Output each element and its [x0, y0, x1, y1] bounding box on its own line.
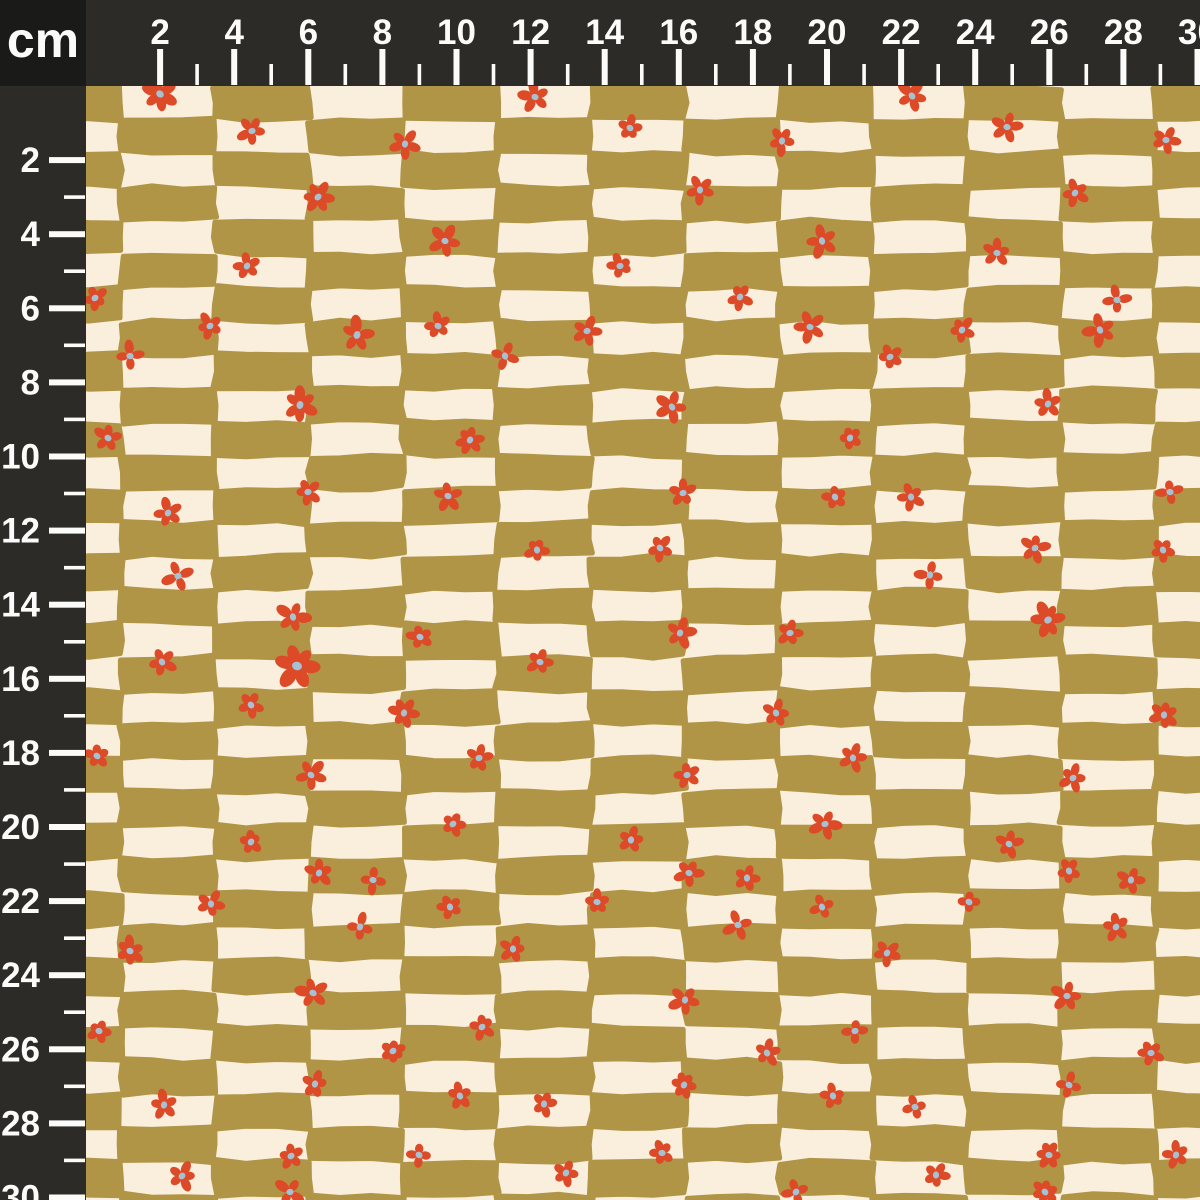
brush-stripe-cell	[119, 186, 216, 220]
brush-stripe-cell	[589, 219, 685, 255]
brush-stripe-cell	[1059, 588, 1157, 624]
brush-stripe-cell	[496, 119, 591, 152]
brush-stripe-cell	[872, 390, 968, 425]
left-minor-tick	[64, 714, 85, 718]
top-minor-tick	[344, 64, 348, 85]
brush-stripe-cell	[119, 118, 215, 153]
top-ruler-label: 4	[224, 13, 244, 52]
brush-stripe-cell	[308, 455, 405, 490]
brush-stripe-cell	[1154, 1092, 1200, 1128]
left-major-tick	[49, 231, 85, 237]
top-ruler-label: 8	[373, 13, 392, 52]
brush-stripe-cell	[684, 120, 780, 155]
brush-stripe-cell	[683, 590, 780, 623]
top-major-tick	[1046, 49, 1052, 85]
left-major-tick	[49, 898, 85, 904]
left-ruler-label: 12	[1, 512, 40, 551]
brush-stripe-cell	[589, 1161, 686, 1195]
brush-stripe-cell	[213, 1095, 310, 1130]
brush-stripe-cell	[403, 152, 499, 188]
brush-stripe-cell	[683, 254, 782, 290]
top-minor-tick	[418, 64, 422, 85]
brush-stripe-cell	[401, 1093, 497, 1128]
top-ruler-label: 24	[956, 13, 995, 52]
brush-stripe-cell	[965, 1093, 1063, 1128]
brush-stripe-cell	[497, 1059, 593, 1093]
brush-stripe-cell	[1154, 757, 1200, 792]
left-ruler-label: 6	[21, 289, 40, 328]
brush-stripe-cell	[1155, 355, 1200, 386]
brush-stripe-cell	[119, 790, 217, 827]
brush-stripe-cell	[873, 186, 969, 221]
brush-stripe-cell	[495, 590, 594, 623]
brush-stripe-cell	[495, 1194, 594, 1200]
brush-stripe-cell	[308, 656, 403, 691]
left-minor-tick	[64, 1085, 85, 1089]
top-minor-tick	[936, 64, 940, 85]
brush-stripe-cell	[308, 724, 404, 758]
brush-stripe-cell	[684, 454, 780, 488]
brush-stripe-cell	[498, 857, 593, 893]
brush-stripe-cell	[122, 389, 216, 424]
brush-stripe-cell	[214, 892, 311, 927]
left-ruler-label: 28	[1, 1104, 40, 1143]
top-ruler-label: 18	[733, 13, 772, 52]
left-ruler-label: 18	[1, 734, 40, 773]
top-minor-tick	[1085, 64, 1089, 85]
left-minor-tick	[64, 1010, 85, 1014]
top-minor-tick	[862, 64, 866, 85]
brush-stripe-cell	[589, 959, 684, 994]
top-major-tick	[157, 49, 163, 85]
brush-stripe-cell	[685, 1126, 780, 1160]
brush-stripe-cell	[873, 656, 968, 690]
top-major-tick	[750, 49, 756, 85]
left-minor-tick	[64, 788, 85, 792]
brush-stripe-cell	[307, 793, 405, 825]
top-major-tick	[379, 49, 385, 85]
brush-stripe-cell	[1059, 926, 1157, 961]
brush-stripe-cell	[965, 891, 1063, 927]
left-minor-tick	[64, 418, 85, 422]
left-ruler-label: 20	[1, 808, 40, 847]
brush-stripe-cell	[589, 421, 686, 457]
brush-stripe-cell	[589, 692, 686, 724]
brush-stripe-cell	[1060, 724, 1156, 758]
brush-stripe-cell	[496, 185, 592, 221]
brush-stripe-cell	[307, 1195, 404, 1200]
top-ruler-label: 10	[437, 13, 476, 52]
left-ruler-label: 22	[1, 882, 40, 921]
brush-stripe-cell	[213, 757, 312, 794]
left-ruler-label: 26	[1, 1030, 40, 1069]
left-ruler-label: 10	[1, 438, 40, 477]
brush-stripe-cell	[590, 354, 688, 389]
brush-stripe-cell	[1059, 121, 1157, 154]
top-minor-tick	[640, 64, 644, 85]
brush-stripe-cell	[871, 1127, 969, 1164]
brush-stripe-cell	[777, 355, 876, 390]
left-major-tick	[49, 157, 85, 163]
brush-stripe-cell	[1061, 1194, 1157, 1200]
brush-stripe-cell	[120, 992, 216, 1028]
brush-stripe-cell	[496, 723, 592, 759]
brush-stripe-cell	[965, 1026, 1060, 1063]
left-minor-tick	[64, 862, 85, 866]
top-minor-tick	[492, 64, 496, 85]
fabric-swatch-canvas: 24681012141618202224262830 2468101214161…	[0, 0, 1200, 1200]
top-ruler-label: 2	[150, 13, 169, 52]
brush-stripe-cell	[496, 1128, 591, 1162]
brush-stripe-cell	[966, 287, 1063, 323]
left-minor-tick	[64, 640, 85, 644]
brush-stripe-cell	[871, 121, 968, 155]
left-major-tick	[49, 676, 85, 682]
brush-stripe-cell	[213, 555, 311, 590]
top-major-tick	[528, 49, 534, 85]
brush-stripe-cell	[307, 254, 404, 289]
brush-stripe-cell	[874, 992, 967, 1026]
brush-stripe-cell	[778, 84, 871, 121]
brush-stripe-cell	[683, 319, 782, 357]
brush-stripe-cell	[308, 1060, 404, 1093]
left-major-tick	[49, 528, 85, 534]
brush-stripe-cell	[872, 455, 969, 491]
brush-stripe-cell	[496, 993, 592, 1028]
brush-stripe-cell	[402, 287, 499, 321]
brush-stripe-cell	[120, 255, 215, 287]
top-major-tick	[454, 49, 460, 85]
left-ruler-label: 2	[21, 141, 40, 180]
brush-stripe-cell	[871, 589, 967, 624]
brush-stripe-cell	[684, 389, 781, 422]
top-ruler-label: 16	[659, 13, 698, 52]
top-major-tick	[231, 49, 237, 85]
left-ruler-label: 14	[1, 586, 40, 625]
left-minor-tick	[64, 269, 85, 273]
fabric-ruler-preview: 24681012141618202224262830 2468101214161…	[0, 0, 1200, 1200]
brush-stripe-cell	[214, 286, 311, 323]
brush-stripe-cell	[119, 588, 216, 624]
brush-stripe-cell	[1062, 254, 1156, 286]
flower-center	[510, 945, 516, 952]
left-major-tick	[49, 972, 85, 978]
brush-stripe-cell	[966, 355, 1063, 390]
brush-stripe-cell	[213, 353, 312, 389]
brush-stripe-cell	[497, 791, 594, 827]
brush-stripe-cell	[872, 791, 969, 826]
left-ruler-label: 16	[1, 660, 40, 699]
brush-stripe-cell	[1154, 152, 1200, 188]
brush-stripe-cell	[777, 151, 874, 187]
brush-stripe-cell	[683, 655, 780, 693]
brush-stripe-cell	[497, 455, 592, 488]
brush-stripe-cell	[307, 387, 406, 422]
left-minor-tick	[64, 1159, 85, 1163]
top-ruler-label: 14	[585, 13, 624, 52]
top-ruler-label: 6	[299, 13, 318, 52]
brush-stripe-cell	[779, 422, 875, 455]
brush-stripe-cell	[1153, 1160, 1200, 1196]
brush-stripe-cell	[495, 387, 591, 424]
brush-stripe-cell	[871, 1061, 969, 1095]
left-ruler-label: 30	[1, 1179, 40, 1200]
top-minor-tick	[1010, 64, 1014, 85]
brush-stripe-cell	[872, 858, 969, 893]
left-minor-tick	[64, 195, 85, 199]
brush-stripe-cell	[966, 420, 1063, 456]
left-minor-tick	[64, 492, 85, 496]
brush-stripe-cell	[683, 1059, 781, 1093]
left-major-tick	[49, 454, 85, 460]
brush-stripe-cell	[215, 825, 311, 860]
brush-stripe-cell	[590, 85, 688, 118]
brush-stripe-cell	[965, 84, 1062, 119]
brush-stripe-cell	[401, 691, 498, 725]
top-major-tick	[824, 49, 830, 85]
top-minor-tick	[1159, 64, 1163, 85]
left-ruler-label: 4	[21, 215, 41, 254]
brush-stripe-cell	[965, 151, 1063, 189]
top-major-tick	[1195, 49, 1200, 85]
brush-stripe-cell	[1059, 453, 1157, 490]
top-minor-tick	[788, 64, 792, 85]
top-minor-tick	[566, 64, 570, 85]
brush-stripe-cell	[778, 689, 875, 726]
left-minor-tick	[64, 936, 85, 940]
brush-stripe-cell	[871, 254, 968, 290]
brush-stripe-cell	[871, 723, 968, 757]
brush-stripe-cell	[213, 423, 309, 457]
brush-stripe-cell	[1155, 624, 1200, 658]
brush-stripe-cell	[684, 791, 780, 828]
brush-stripe-cell	[590, 490, 687, 524]
brush-stripe-cell	[1060, 656, 1155, 692]
brush-stripe-cell	[1154, 288, 1200, 323]
brush-stripe-cell	[308, 1128, 402, 1161]
brush-stripe-cell	[590, 286, 686, 321]
brush-stripe-cell	[965, 689, 1063, 726]
brush-stripe-cell	[589, 757, 686, 794]
brush-stripe-cell	[1059, 791, 1156, 824]
brush-stripe-cell	[965, 757, 1061, 792]
brush-stripe-cell	[215, 154, 311, 188]
brush-stripe-cell	[213, 221, 311, 256]
top-major-tick	[305, 49, 311, 85]
brush-stripe-cell	[307, 524, 405, 557]
brush-stripe-cell	[779, 959, 875, 994]
flower-center	[933, 1171, 939, 1178]
left-major-tick	[49, 824, 85, 830]
brush-stripe-cell	[1153, 894, 1200, 927]
brush-stripe-cell	[401, 355, 498, 390]
left-minor-tick	[64, 344, 85, 348]
brush-stripe-cell	[120, 1059, 215, 1096]
brush-stripe-cell	[120, 857, 217, 894]
top-ruler-label: 22	[882, 13, 921, 52]
brush-stripe-cell	[965, 488, 1063, 524]
left-major-tick	[49, 379, 85, 385]
brush-stripe-cell	[215, 489, 311, 525]
brush-stripe-cell	[872, 1195, 969, 1200]
brush-stripe-cell	[871, 523, 969, 557]
top-minor-tick	[195, 64, 199, 85]
brush-stripe-cell	[1060, 388, 1155, 422]
brush-stripe-cell	[496, 254, 592, 289]
brush-stripe-cell	[589, 153, 687, 189]
left-ruler-label: 8	[21, 363, 40, 402]
brush-stripe-cell	[1061, 522, 1157, 557]
brush-stripe-cell	[778, 288, 873, 322]
brush-stripe-cell	[1153, 422, 1200, 456]
brush-stripe-cell	[589, 1025, 685, 1060]
top-ruler-label: 20	[808, 13, 847, 52]
ruler-unit-label: cm	[7, 12, 79, 68]
flower-petal	[993, 238, 1002, 252]
brush-stripe-cell	[119, 1127, 215, 1163]
brush-stripe-cell	[966, 219, 1061, 256]
brush-stripe-cell	[402, 959, 499, 993]
top-major-tick	[602, 49, 608, 85]
left-major-tick	[49, 305, 85, 311]
brush-stripe-cell	[1156, 959, 1200, 995]
brush-stripe-cell	[213, 85, 312, 121]
top-minor-tick	[269, 64, 273, 85]
brush-stripe-cell	[683, 522, 779, 558]
brush-stripe-cell	[119, 724, 216, 759]
brush-stripe-cell	[308, 588, 405, 625]
left-major-tick	[49, 1046, 85, 1052]
brush-stripe-cell	[1154, 220, 1200, 255]
left-ruler-label: 24	[1, 956, 40, 995]
brush-stripe-cell	[121, 522, 216, 559]
brush-stripe-cell	[684, 992, 779, 1027]
brush-stripe-cell	[589, 1095, 687, 1129]
top-ruler-label: 26	[1030, 13, 1069, 52]
top-major-tick	[676, 49, 682, 85]
top-major-tick	[898, 49, 904, 85]
left-major-tick	[49, 750, 85, 756]
brush-stripe-cell	[213, 1025, 309, 1061]
top-ruler-label: 28	[1104, 13, 1143, 52]
brush-stripe-cell	[1154, 824, 1200, 859]
brush-stripe-cell	[969, 960, 1060, 994]
brush-stripe-cell	[684, 1196, 780, 1200]
brush-stripe-cell	[308, 120, 404, 154]
left-major-tick	[49, 602, 85, 608]
top-major-tick	[972, 49, 978, 85]
brush-stripe-cell	[589, 555, 686, 590]
brush-stripe-cell	[1059, 1129, 1157, 1163]
left-major-tick	[49, 1120, 85, 1126]
top-ruler-label: 30	[1178, 13, 1200, 52]
brush-stripe-cell	[403, 556, 499, 592]
brush-stripe-cell	[777, 555, 875, 589]
top-minor-tick	[714, 64, 718, 85]
top-ruler-label: 12	[511, 13, 550, 52]
top-major-tick	[1120, 49, 1126, 85]
top-ruler-labels: 24681012141618202224262830	[150, 13, 1200, 52]
brush-stripe-cell	[966, 558, 1061, 590]
brush-stripe-cell	[1153, 86, 1200, 119]
brush-stripe-cell	[405, 85, 499, 119]
left-minor-tick	[64, 566, 85, 570]
brush-stripe-cell	[214, 959, 309, 993]
left-major-tick	[49, 1195, 85, 1200]
brush-stripe-cell	[120, 457, 217, 489]
brush-stripe-cell	[684, 723, 778, 758]
